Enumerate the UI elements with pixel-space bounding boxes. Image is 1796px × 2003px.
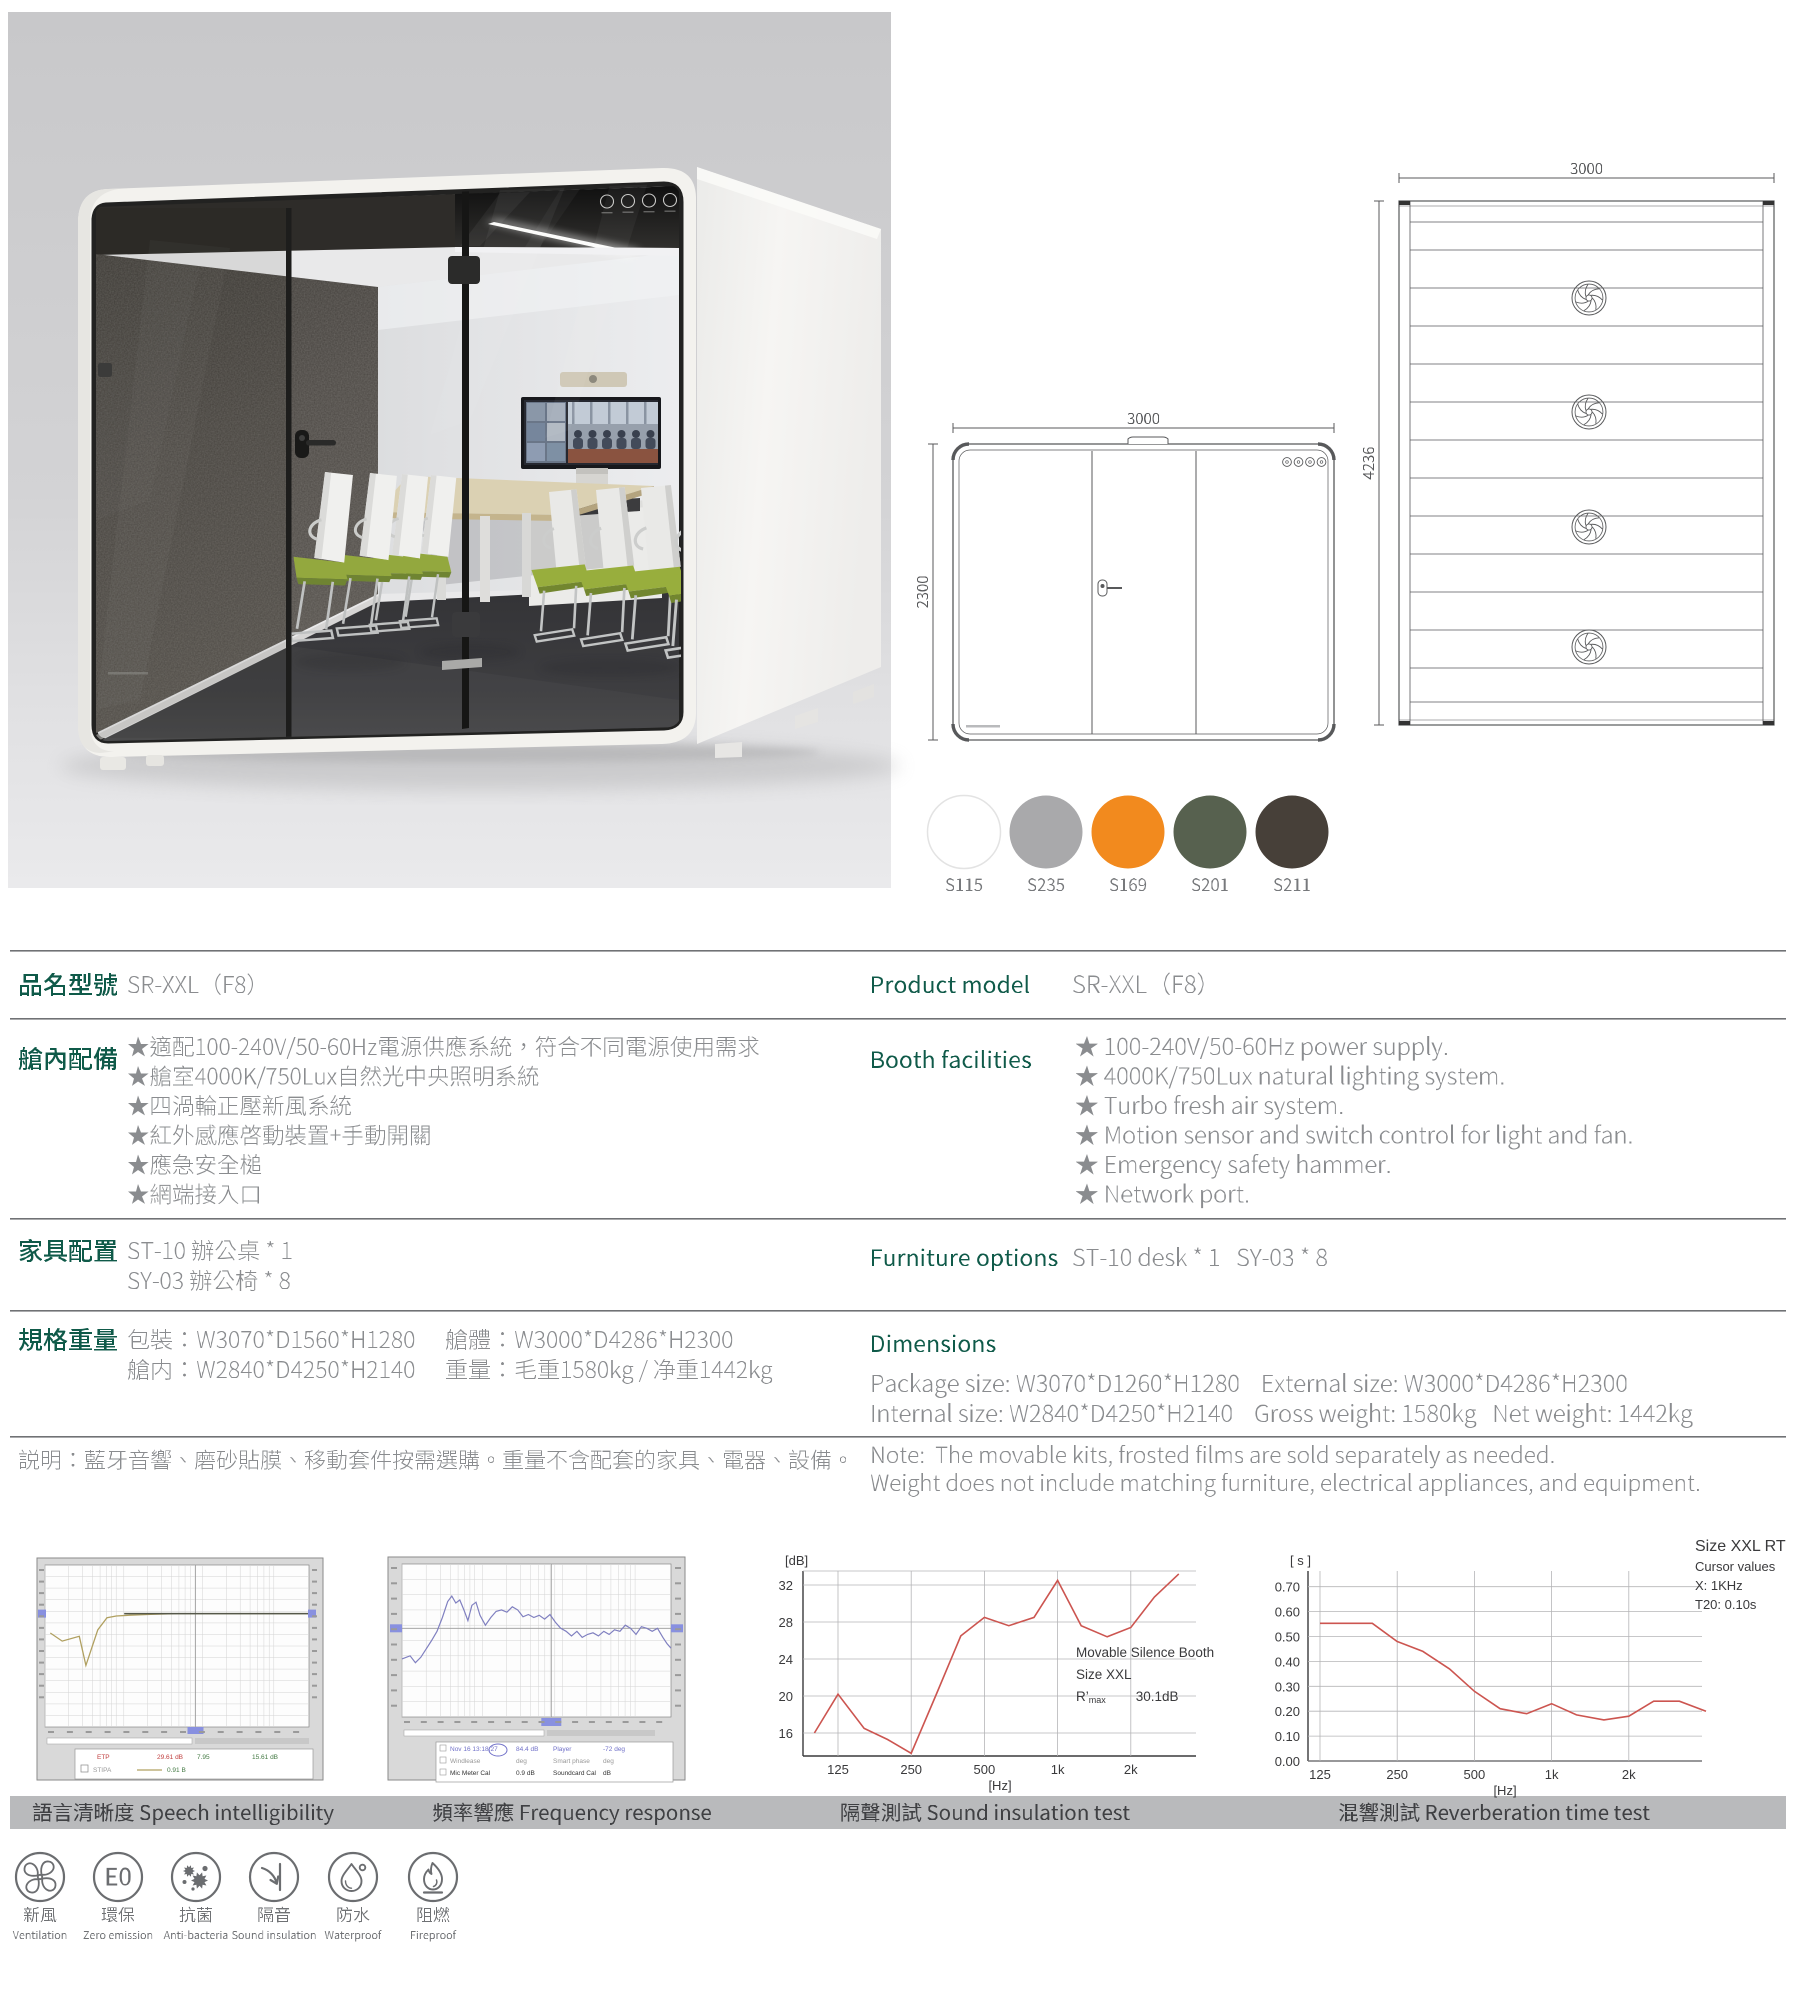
svg-text:R’max30.1dB: R’max30.1dB — [1076, 1689, 1179, 1705]
svg-text:Smart phase: Smart phase — [553, 1758, 590, 1765]
svg-text:24: 24 — [779, 1652, 793, 1667]
svg-text:[dB]: [dB] — [785, 1553, 808, 1568]
svg-text:1k: 1k — [1051, 1762, 1065, 1777]
svg-text:0.30: 0.30 — [1275, 1679, 1300, 1694]
svg-text:500: 500 — [974, 1762, 996, 1777]
svg-text:2k: 2k — [1124, 1762, 1138, 1777]
svg-text:Windlease: Windlease — [450, 1758, 481, 1765]
svg-text:0.10: 0.10 — [1275, 1729, 1300, 1744]
svg-text:[Hz]: [Hz] — [988, 1778, 1011, 1793]
svg-text:500: 500 — [1464, 1767, 1486, 1782]
svg-text:Player: Player — [553, 1746, 572, 1753]
svg-text:84.4 dB: 84.4 dB — [516, 1746, 538, 1753]
svg-text:29.61 dB: 29.61 dB — [157, 1754, 183, 1761]
svg-text:0.91 B: 0.91 B — [167, 1767, 186, 1774]
svg-text:Movable Silence Booth: Movable Silence Booth — [1076, 1645, 1214, 1660]
svg-text:ETP: ETP — [97, 1754, 110, 1761]
svg-text:0.40: 0.40 — [1275, 1654, 1300, 1669]
svg-text:0.20: 0.20 — [1275, 1704, 1300, 1719]
svg-text:250: 250 — [900, 1762, 922, 1777]
svg-text:250: 250 — [1386, 1767, 1408, 1782]
svg-text:Nov 16 13:18:27: Nov 16 13:18:27 — [450, 1746, 498, 1753]
svg-text:7.95: 7.95 — [197, 1754, 210, 1761]
svg-text:1k: 1k — [1545, 1767, 1559, 1782]
svg-text:[ s ]: [ s ] — [1290, 1553, 1311, 1568]
svg-text:-72 deg: -72 deg — [603, 1746, 625, 1753]
svg-text:32: 32 — [779, 1578, 793, 1593]
svg-text:X: 1KHz: X: 1KHz — [1695, 1578, 1743, 1593]
svg-text:2k: 2k — [1622, 1767, 1636, 1782]
svg-text:Soundcard Cal: Soundcard Cal — [553, 1770, 597, 1777]
svg-text:Size XXL RT: Size XXL RT — [1695, 1538, 1786, 1555]
svg-text:16: 16 — [779, 1726, 793, 1741]
svg-text:Size XXL: Size XXL — [1076, 1667, 1132, 1682]
svg-text:[Hz]: [Hz] — [1493, 1783, 1516, 1798]
svg-text:0.50: 0.50 — [1275, 1630, 1300, 1645]
svg-text:28: 28 — [779, 1615, 793, 1630]
svg-text:125: 125 — [827, 1762, 849, 1777]
svg-text:deg: deg — [603, 1758, 614, 1765]
svg-text:0.70: 0.70 — [1275, 1580, 1300, 1595]
svg-text:Mic Meter Cal: Mic Meter Cal — [450, 1770, 491, 1777]
svg-text:dB: dB — [603, 1770, 611, 1777]
svg-text:15.61 dB: 15.61 dB — [252, 1754, 278, 1761]
svg-text:125: 125 — [1309, 1767, 1331, 1782]
svg-text:deg: deg — [516, 1758, 527, 1765]
svg-text:0.00: 0.00 — [1275, 1754, 1300, 1769]
svg-text:STIPA: STIPA — [93, 1767, 112, 1774]
svg-text:Cursor values: Cursor values — [1695, 1559, 1776, 1574]
svg-text:0.9 dB: 0.9 dB — [516, 1770, 535, 1777]
svg-text:T20: 0.10s: T20: 0.10s — [1695, 1597, 1757, 1612]
svg-text:0.60: 0.60 — [1275, 1605, 1300, 1620]
svg-text:20: 20 — [779, 1689, 793, 1704]
